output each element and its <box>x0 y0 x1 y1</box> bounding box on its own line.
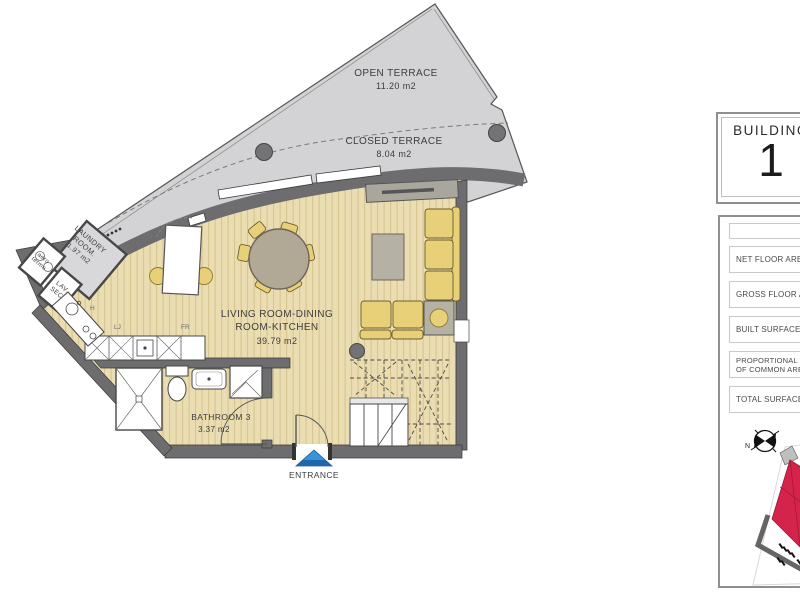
svg-text:LIVING ROOM-DINING: LIVING ROOM-DINING <box>221 309 333 320</box>
table-row-net-floor-area: NET FLOOR AREA <box>729 246 800 273</box>
bathroom-area: 3.37 m2 <box>198 425 230 434</box>
sofa-backrest <box>360 330 391 339</box>
kitchen-label-fr: FR <box>181 324 190 331</box>
site-plan-thumbnail <box>753 441 800 585</box>
table-row-built-surface: BUILT SURFACE OF T <box>729 316 800 343</box>
kitchen-label-h: H <box>90 305 95 312</box>
column <box>489 125 506 142</box>
sofa-cushion <box>361 301 391 328</box>
toilet <box>168 377 186 401</box>
sofa-cushion <box>425 240 453 269</box>
building-number: 1 <box>758 137 784 183</box>
lamp <box>430 309 448 327</box>
table-row-blank <box>729 223 800 239</box>
closed-terrace-label: CLOSED TERRACE <box>345 136 442 147</box>
column <box>350 344 365 359</box>
building-box: BUILDING 1 <box>716 112 800 204</box>
closed-terrace-area: 8.04 m2 <box>376 149 411 159</box>
right-wall-opening <box>454 320 469 342</box>
table-row-proportional-part: PROPORTIONAL PAR OF COMMON AREA <box>729 351 800 378</box>
kitchen-label-lj: LJ <box>114 324 121 331</box>
open-terrace-label: OPEN TERRACE <box>354 68 438 79</box>
table-row-total-surface: TOTAL SURFACE AR <box>729 386 800 413</box>
sofa-backrest <box>392 330 423 339</box>
floor-plan-drawing: OPEN TERRACE 11.20 m2 CLOSED TERRACE 8.0… <box>0 0 800 600</box>
compass-icon: N <box>745 430 779 452</box>
sofa-cushion <box>393 301 423 328</box>
floor-plan-page: OPEN TERRACE 11.20 m2 CLOSED TERRACE 8.0… <box>0 0 800 600</box>
compass-north-label: N <box>745 443 750 450</box>
bathroom-label: BATHROOM 3 <box>191 412 251 422</box>
dining-table <box>249 229 309 289</box>
table-row-gross-floor-area: GROSS FLOOR AREA <box>729 281 800 308</box>
toilet-tank <box>166 366 188 376</box>
location-graphics: N <box>720 417 800 588</box>
sofa-cushion <box>425 209 453 238</box>
unit-highlight <box>772 460 800 549</box>
entrance-label: ENTRANCE <box>289 470 339 480</box>
area-table-panel: NET FLOOR AREA GROSS FLOOR AREA BUILT SU… <box>718 215 800 588</box>
svg-text:ROOM-KITCHEN: ROOM-KITCHEN <box>235 322 318 333</box>
sofa-cushion <box>425 271 453 300</box>
column <box>256 144 273 161</box>
coffee-table <box>372 234 404 280</box>
living-room-area: 39.79 m2 <box>257 336 298 346</box>
open-terrace-area: 11.20 m2 <box>376 81 416 91</box>
side-table <box>424 301 454 335</box>
